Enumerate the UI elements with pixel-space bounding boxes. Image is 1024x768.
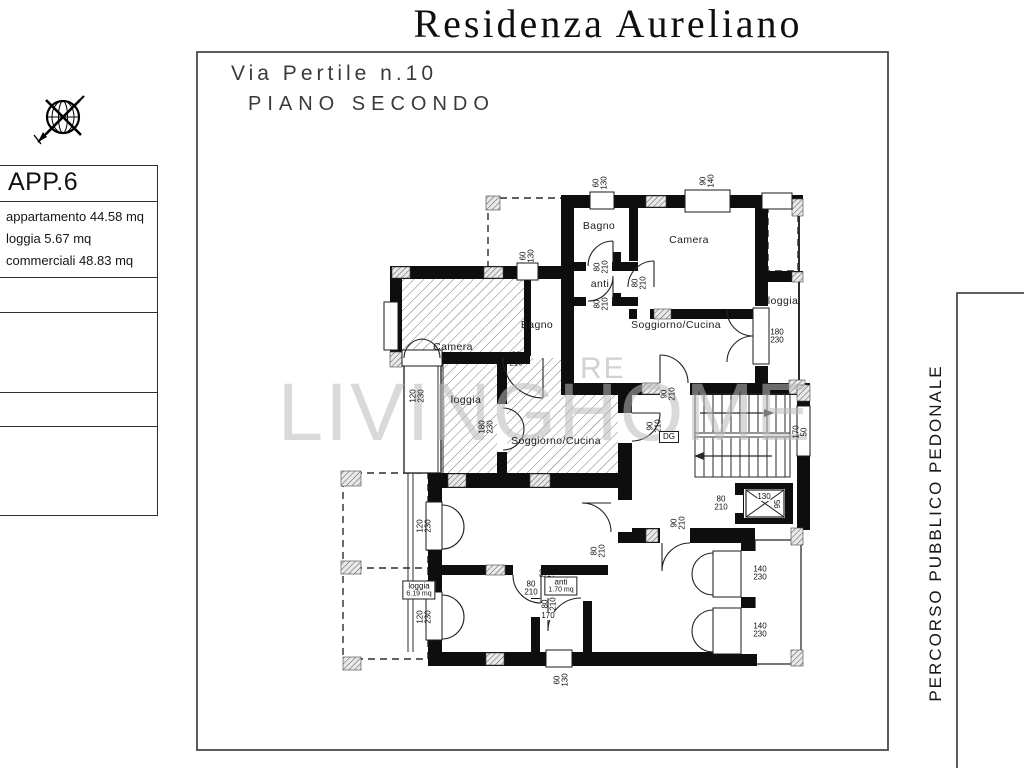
address-line: Via Pertile n.10 [231,62,437,86]
apartment-number: APP.6 [0,166,157,201]
area-line: appartamento 44.58 mq [6,206,157,228]
pedestrian-path-label: PERCORSO PUBBLICO PEDONALE [926,364,946,701]
elevator [744,489,785,518]
area-line: commerciali 48.83 mq [6,250,157,272]
empty-row [0,426,157,515]
compass-icon [34,96,84,144]
area-line: loggia 5.67 mq [6,228,157,250]
empty-row [0,312,157,392]
empty-row [0,277,157,312]
apartment-areas: appartamento 44.58 mq loggia 5.67 mq com… [0,201,157,277]
floor-line: PIANO SECONDO [248,93,495,116]
pedestrian-path-outline [957,293,1024,768]
floor-plan-sheet: RE LIVINGHOME Residenza Aureliano Via Pe… [0,0,1024,768]
watermark-text: LIVINGHOME [278,366,813,460]
page-title: Residenza Aureliano [413,0,802,47]
apartment-info-box: APP.6 appartamento 44.58 mq loggia 5.67 … [0,165,158,516]
empty-row [0,392,157,426]
